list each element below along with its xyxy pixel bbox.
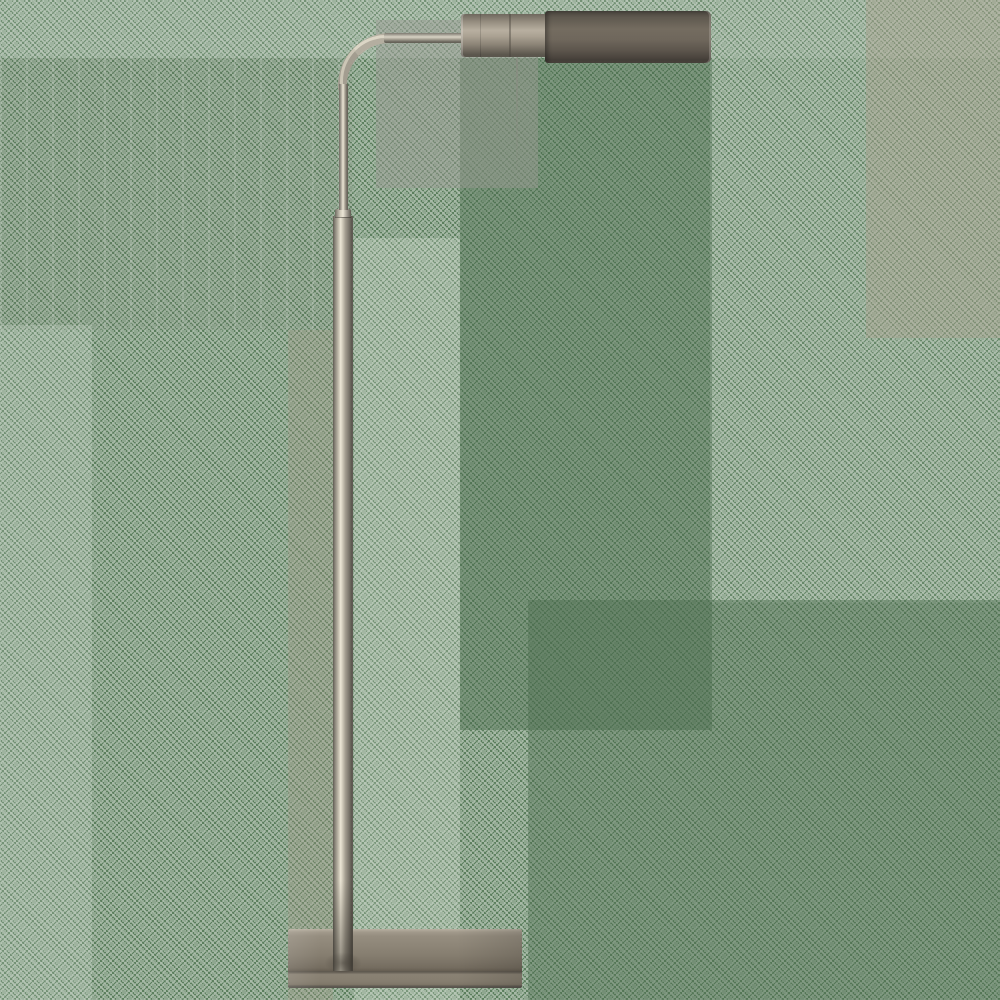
shade-reflection-streak xyxy=(516,58,518,183)
lamp-arm-bend-highlight xyxy=(340,35,386,88)
lamp-shade-body xyxy=(545,11,711,63)
shade-seam-faint xyxy=(480,14,481,57)
pole-base-shadow xyxy=(324,952,362,974)
floor-lamp xyxy=(0,0,1000,1000)
lamp-shade-front-cap xyxy=(461,14,547,57)
lamp-pole-collar xyxy=(335,209,351,217)
lamp-pole-upper xyxy=(339,84,348,210)
product-image xyxy=(0,0,1000,1000)
lamp-pole-lower xyxy=(333,216,353,971)
lamp-arm xyxy=(384,33,464,43)
shade-seam xyxy=(509,14,511,57)
